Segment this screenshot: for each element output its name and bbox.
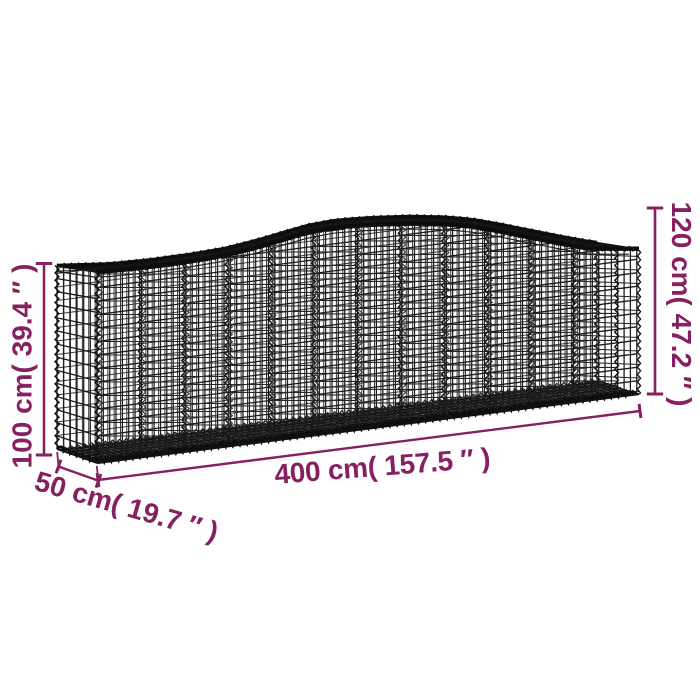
svg-text:50 cm( 19.7 ″ ): 50 cm( 19.7 ″ ) [31, 465, 222, 547]
svg-text:100 cm( 39.4 ″ ): 100 cm( 39.4 ″ ) [7, 264, 38, 469]
svg-text:400 cm( 157.5 ″ ): 400 cm( 157.5 ″ ) [273, 442, 491, 490]
svg-text:120 cm( 47.2 ″ ): 120 cm( 47.2 ″ ) [666, 202, 697, 407]
